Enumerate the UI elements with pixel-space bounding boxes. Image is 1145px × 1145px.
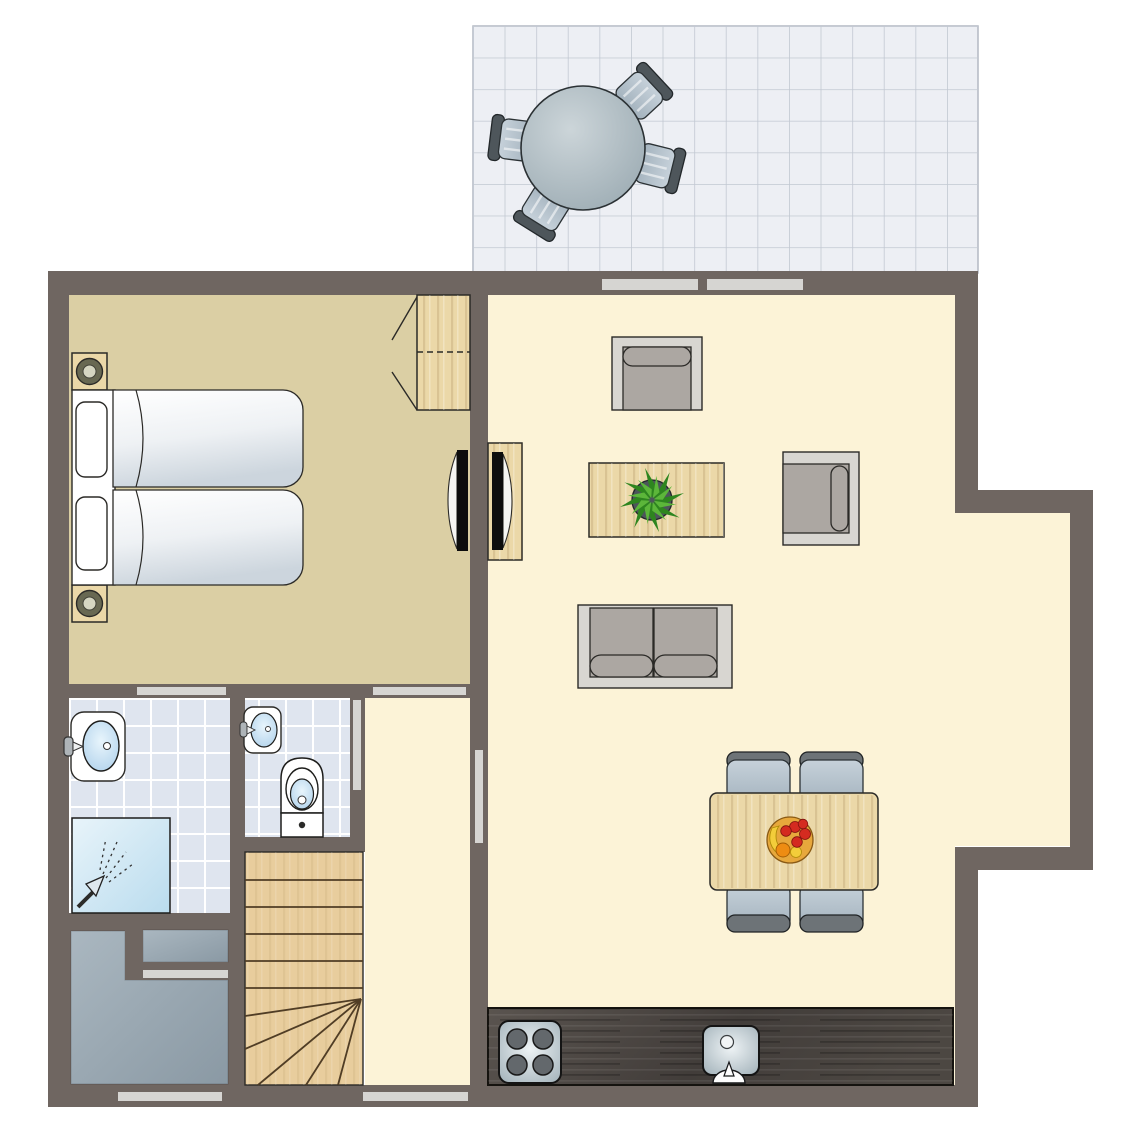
- mattress-bottom: [113, 490, 303, 585]
- kitchen: [488, 1008, 953, 1085]
- window-bottom-center: [363, 1092, 468, 1101]
- tv-cabinet: [488, 443, 522, 560]
- lamp-icon: [77, 591, 103, 617]
- window-bottom-left: [118, 1092, 222, 1101]
- armchair-backrest: [831, 466, 848, 531]
- wall-under-bathroom: [69, 913, 245, 930]
- wall-right-upper: [955, 271, 978, 513]
- storage-closet: [71, 930, 228, 1084]
- wall-top: [48, 271, 978, 295]
- double-bed: [72, 390, 303, 585]
- floor-plan: [0, 0, 1145, 1145]
- lamp-icon: [77, 359, 103, 385]
- hob-icon: [499, 1021, 561, 1083]
- wall-bay-right: [1070, 490, 1093, 870]
- storage-unit-small: [143, 930, 228, 962]
- dining-chair: [800, 884, 863, 932]
- wall-left: [48, 271, 69, 1107]
- kitchen-sink-icon: [703, 1026, 759, 1083]
- armchair-right: [783, 452, 859, 545]
- wall-under-toilet: [245, 837, 365, 852]
- floor-plan-page: [0, 0, 1145, 1145]
- hallway-floor: [365, 698, 472, 1085]
- terrace-sliding-door: [602, 279, 698, 290]
- wall-center-vertical: [470, 295, 488, 1085]
- sofa-backrest: [590, 655, 653, 677]
- small-washbasin-icon: [240, 707, 281, 753]
- wall-right-lower: [955, 847, 978, 1107]
- washbasin-icon: [64, 712, 125, 781]
- armchair-top: [612, 337, 702, 410]
- fruit-bowl: [767, 817, 813, 863]
- toilet-icon: [281, 758, 323, 837]
- pillow: [76, 497, 107, 570]
- living-room-door-threshold: [475, 750, 483, 843]
- bedroom-door-threshold: [373, 687, 466, 695]
- dining-chair: [727, 884, 790, 932]
- living-room-tv: [492, 452, 503, 550]
- terrace-round-table: [521, 86, 645, 210]
- armchair-backrest: [623, 347, 691, 366]
- toilet-door-threshold: [353, 700, 361, 790]
- mattress-top: [113, 390, 303, 487]
- shower-icon: [72, 818, 170, 913]
- living-room-floor: [488, 295, 1070, 1085]
- sofa-backrest: [654, 655, 717, 677]
- staircase: [245, 852, 363, 1085]
- sofa: [578, 605, 732, 688]
- bathroom-door-threshold: [137, 687, 226, 695]
- orange: [776, 843, 790, 857]
- terrace-sliding-door: [707, 279, 803, 290]
- terrace: [473, 26, 978, 273]
- closet-divider-wall: [125, 930, 143, 980]
- pillow: [76, 402, 107, 477]
- closet-door-threshold: [143, 970, 228, 978]
